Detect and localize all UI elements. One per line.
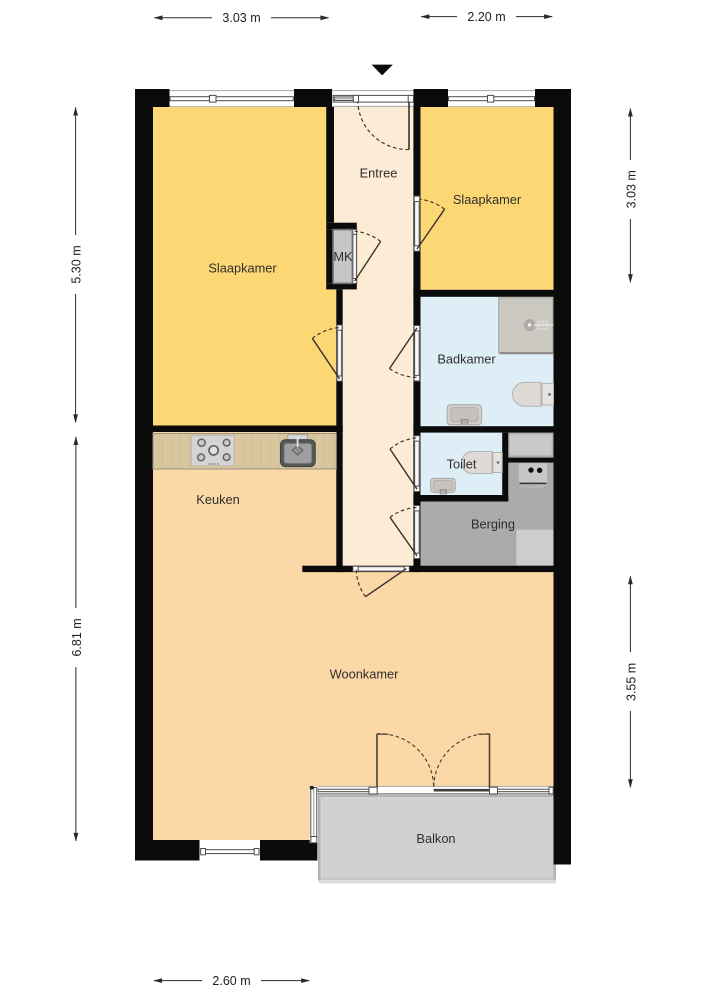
svg-text:Balkon: Balkon: [416, 831, 455, 846]
svg-text:MK: MK: [333, 249, 353, 264]
svg-text:5.30 m: 5.30 m: [70, 245, 84, 283]
svg-text:Entree: Entree: [360, 166, 398, 181]
svg-text:3.55 m: 3.55 m: [624, 663, 638, 701]
svg-text:Keuken: Keuken: [196, 492, 239, 507]
svg-text:Toilet: Toilet: [447, 457, 477, 472]
svg-text:Berging: Berging: [471, 517, 515, 532]
svg-text:2.60 m: 2.60 m: [212, 974, 250, 988]
svg-text:2.20 m: 2.20 m: [467, 10, 505, 24]
svg-text:Slaapkamer: Slaapkamer: [208, 261, 277, 276]
svg-text:6.81 m: 6.81 m: [70, 618, 84, 656]
svg-text:3.03 m: 3.03 m: [624, 170, 638, 208]
svg-text:Woonkamer: Woonkamer: [330, 667, 399, 682]
svg-text:3.03 m: 3.03 m: [222, 11, 260, 25]
svg-text:Slaapkamer: Slaapkamer: [453, 192, 522, 207]
svg-text:Badkamer: Badkamer: [437, 352, 496, 367]
